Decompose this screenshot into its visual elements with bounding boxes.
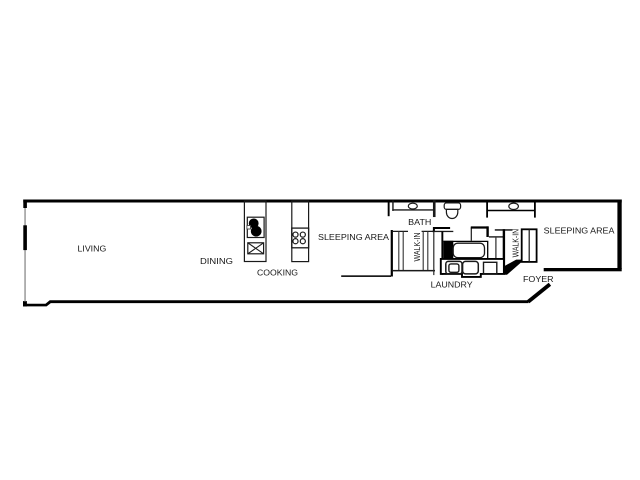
svg-text:BATH: BATH	[408, 218, 431, 227]
svg-text:WALK-IN: WALK-IN	[413, 232, 422, 261]
svg-text:WALK-IN: WALK-IN	[511, 229, 520, 258]
svg-text:SLEEPING AREA: SLEEPING AREA	[318, 233, 390, 242]
svg-text:DINING: DINING	[200, 257, 233, 266]
svg-text:FOYER: FOYER	[523, 275, 554, 284]
svg-text:LIVING: LIVING	[78, 244, 107, 253]
svg-text:COOKING: COOKING	[257, 269, 298, 278]
svg-text:LAUNDRY: LAUNDRY	[431, 281, 474, 290]
svg-text:SLEEPING AREA: SLEEPING AREA	[544, 226, 615, 235]
